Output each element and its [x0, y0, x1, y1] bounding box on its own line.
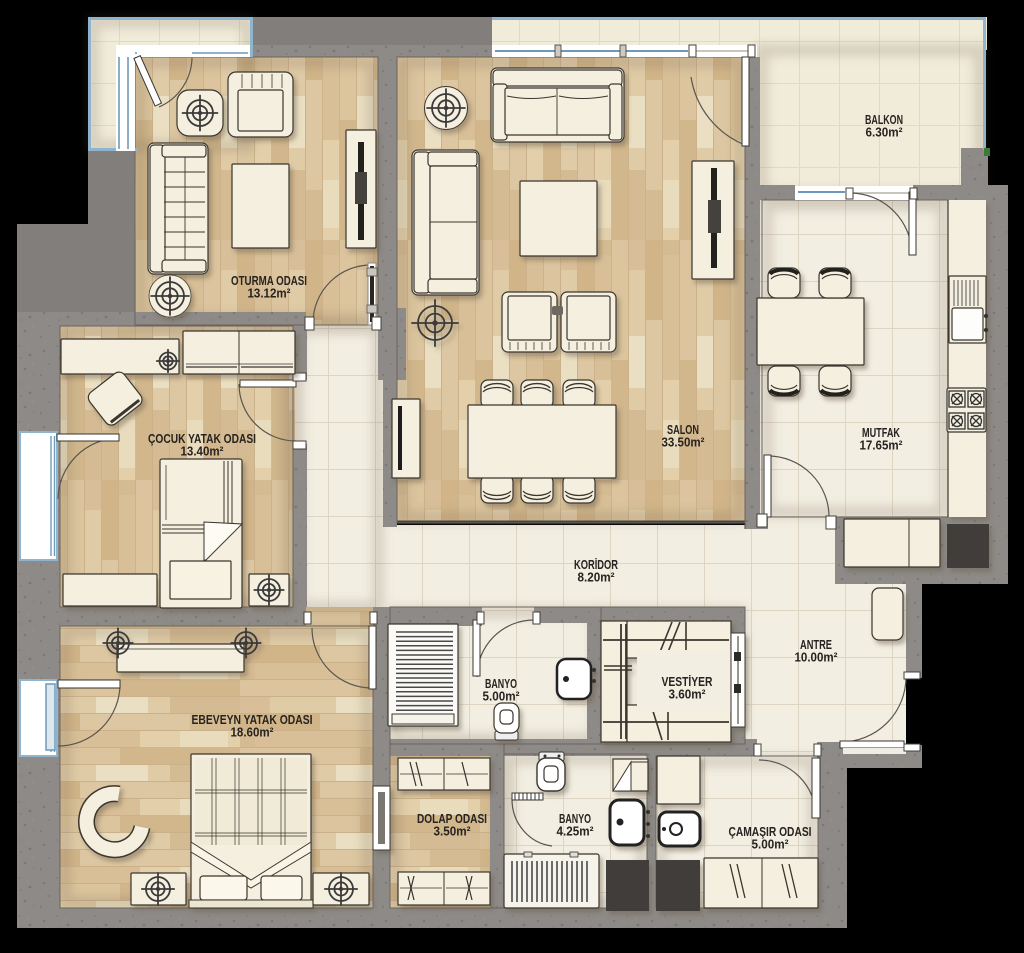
svg-text:3.60m²: 3.60m²: [669, 686, 706, 701]
svg-text:6.30m²: 6.30m²: [866, 124, 903, 139]
svg-text:5.00m²: 5.00m²: [752, 836, 789, 851]
svg-text:3.50m²: 3.50m²: [434, 823, 471, 838]
svg-text:4.25m²: 4.25m²: [557, 823, 594, 838]
svg-text:10.00m²: 10.00m²: [795, 649, 838, 664]
svg-text:18.60m²: 18.60m²: [231, 724, 274, 739]
svg-text:8.20m²: 8.20m²: [578, 569, 615, 584]
svg-text:13.40m²: 13.40m²: [181, 443, 224, 458]
svg-text:17.65m²: 17.65m²: [860, 437, 903, 452]
svg-text:33.50m²: 33.50m²: [662, 434, 705, 449]
svg-text:13.12m²: 13.12m²: [248, 285, 291, 300]
svg-text:5.00m²: 5.00m²: [483, 688, 520, 703]
